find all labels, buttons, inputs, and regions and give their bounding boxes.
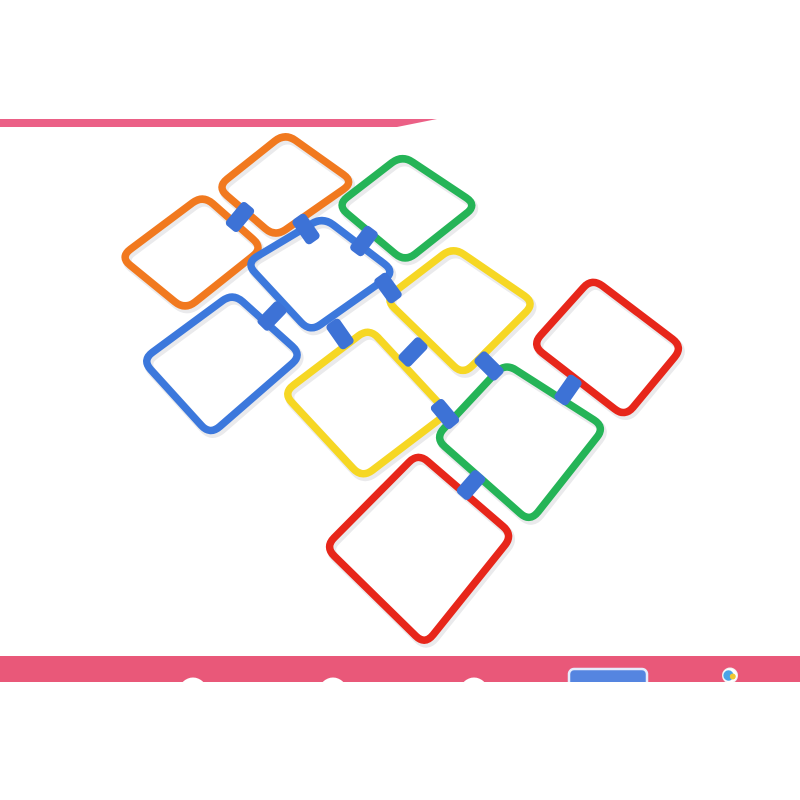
bottom-banner-dot bbox=[319, 678, 347, 706]
product-image-page bbox=[0, 0, 800, 800]
bottom-banner-dot bbox=[179, 678, 207, 706]
product-photo bbox=[0, 0, 800, 800]
bottom-banner-badge bbox=[569, 669, 647, 695]
bottom-banner bbox=[0, 656, 800, 706]
bottom-banner-logo-yellow-icon bbox=[730, 674, 736, 680]
bottom-banner-dot bbox=[460, 678, 488, 706]
top-banner-stripe bbox=[0, 119, 437, 127]
bottom-banner-bar bbox=[0, 656, 800, 682]
